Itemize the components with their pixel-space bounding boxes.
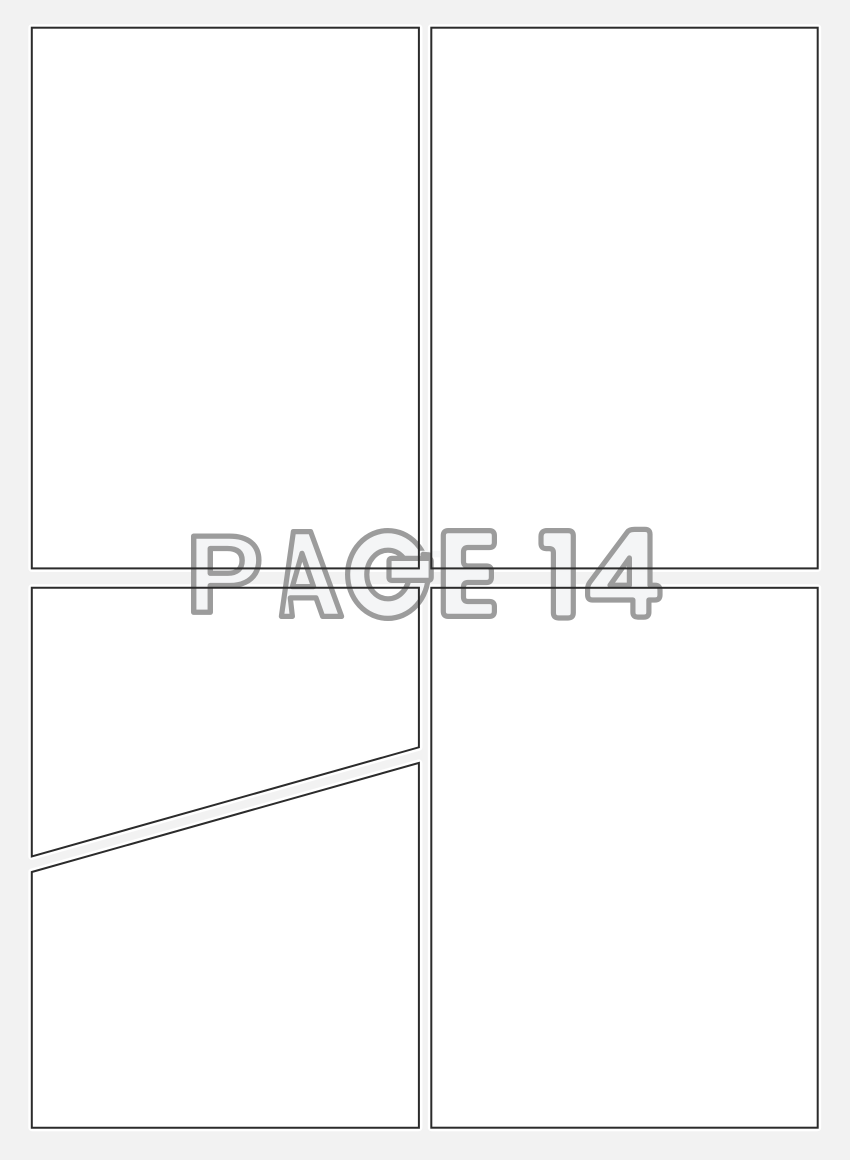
svg-text:P: P <box>186 513 263 636</box>
